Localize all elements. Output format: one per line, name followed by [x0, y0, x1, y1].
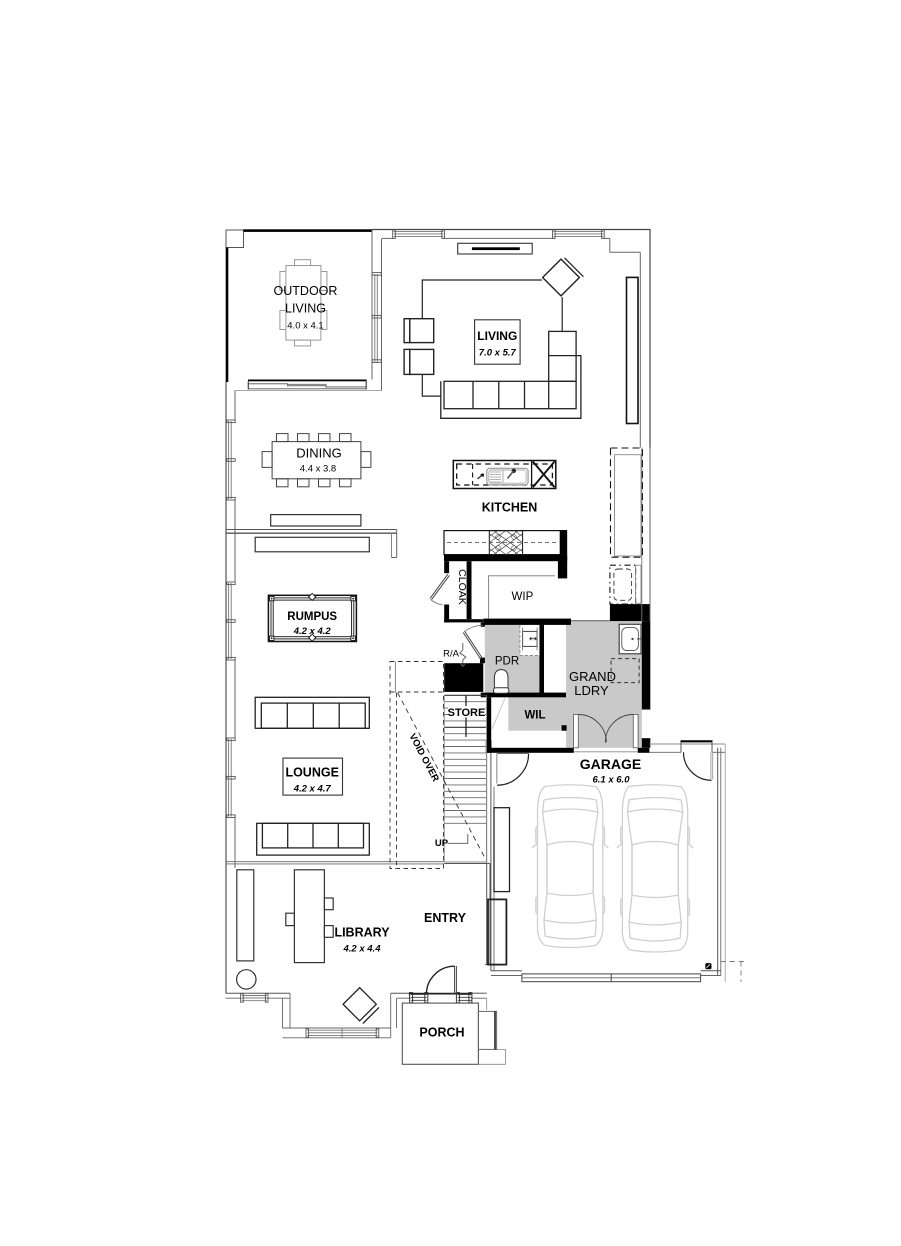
svg-text:OUTDOOR: OUTDOOR [274, 284, 338, 298]
svg-text:RUMPUS: RUMPUS [287, 611, 337, 623]
svg-text:7.0 x 5.7: 7.0 x 5.7 [479, 348, 517, 359]
svg-text:LIBRARY: LIBRARY [334, 926, 390, 940]
svg-text:CLOAK: CLOAK [456, 569, 468, 605]
svg-text:GARAGE: GARAGE [580, 756, 641, 772]
svg-text:4.2 x 4.7: 4.2 x 4.7 [293, 784, 332, 795]
svg-text:LIVING: LIVING [477, 329, 517, 343]
svg-text:WIP: WIP [512, 591, 534, 603]
svg-text:6.1 x 6.0: 6.1 x 6.0 [593, 775, 631, 786]
svg-text:PORCH: PORCH [419, 1026, 464, 1040]
svg-text:4.0 x 4.1: 4.0 x 4.1 [287, 321, 323, 332]
svg-text:4.2 x 4.4: 4.2 x 4.4 [343, 944, 382, 955]
svg-text:PDR: PDR [495, 656, 519, 668]
svg-text:GRAND: GRAND [569, 669, 616, 684]
svg-text:4.2 x 4.2: 4.2 x 4.2 [293, 626, 332, 637]
svg-text:LIVING: LIVING [285, 302, 326, 316]
svg-text:WIL: WIL [524, 710, 545, 722]
svg-text:LDRY: LDRY [574, 683, 609, 698]
svg-text:UP: UP [435, 838, 449, 849]
svg-text:STORE: STORE [448, 707, 486, 719]
svg-text:LOUNGE: LOUNGE [285, 766, 338, 780]
svg-text:KITCHEN: KITCHEN [482, 501, 538, 515]
svg-text:R/A: R/A [443, 649, 460, 660]
svg-text:4.4 x 3.8: 4.4 x 3.8 [300, 463, 336, 474]
svg-text:ENTRY: ENTRY [424, 911, 467, 925]
svg-text:DINING: DINING [296, 446, 342, 461]
